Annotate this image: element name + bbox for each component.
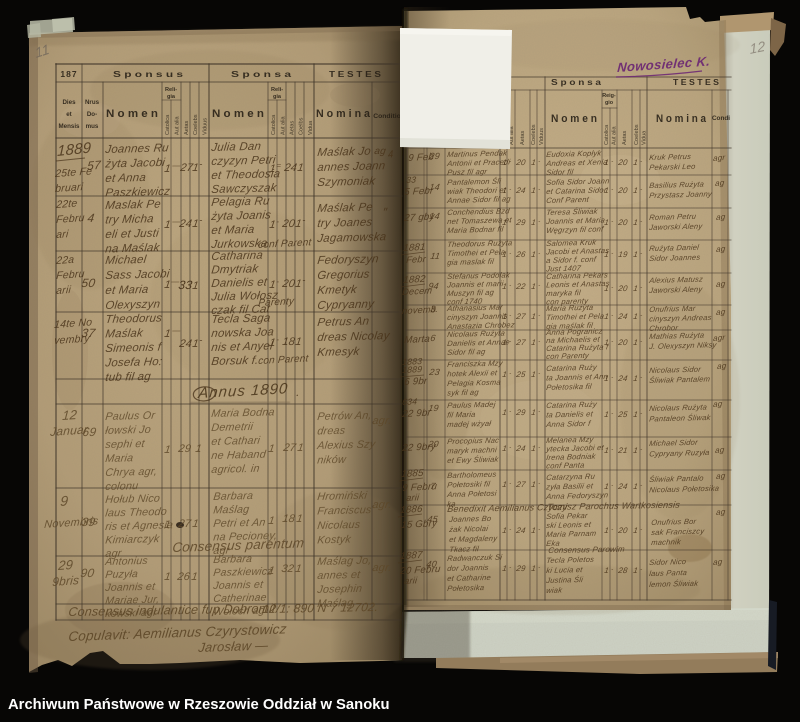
svg-text:fil Maria: fil Maria [447, 410, 476, 420]
svg-text:ag: ag [716, 212, 726, 222]
svg-text:ag: ag [713, 399, 723, 409]
svg-text:agr: agr [713, 333, 726, 343]
svg-text:20: 20 [427, 439, 440, 449]
svg-text:gia: gia [167, 94, 176, 100]
svg-text:Puzyła: Puzyła [105, 568, 139, 581]
svg-text:12: 12 [749, 38, 766, 57]
svg-text:mus: mus [86, 123, 99, 130]
svg-text:sak Franciszcy: sak Franciszcy [651, 527, 706, 537]
svg-text:Jaworski Aleny: Jaworski Aleny [648, 222, 704, 232]
svg-text:ag: ag [713, 557, 723, 567]
svg-text:Pelagia Kosma: Pelagia Kosma [447, 378, 502, 388]
svg-text:nis et Anyel: nis et Anyel [211, 340, 274, 354]
svg-text:Theodorus: Theodorus [105, 313, 163, 326]
svg-text:Mensis: Mensis [59, 123, 81, 130]
svg-text:gia: gia [273, 94, 282, 100]
svg-text:eli et Justi: eli et Justi [105, 228, 160, 241]
svg-text:29: 29 [177, 443, 192, 455]
svg-text:Catharina: Catharina [211, 250, 264, 263]
svg-text:Nicolaus Połetosika: Nicolaus Połetosika [649, 484, 720, 495]
svg-text:Śliwiak Pantalem: Śliwiak Pantalem [649, 374, 711, 385]
svg-text:Aut alia: Aut alia [612, 125, 618, 145]
svg-text:Kostyk: Kostyk [317, 534, 352, 547]
svg-text:annes et: annes et [317, 569, 362, 582]
svg-text:Barbara: Barbara [213, 553, 253, 566]
svg-text:9bris: 9bris [52, 573, 80, 589]
svg-text:Aetas: Aetas [520, 130, 526, 145]
svg-text:Pelagia Ru: Pelagia Ru [211, 195, 271, 209]
svg-text:22: 22 [515, 282, 527, 291]
svg-text:arii: arii [406, 492, 421, 503]
svg-text:20: 20 [617, 338, 629, 347]
svg-text:33: 33 [406, 174, 417, 185]
svg-text:3.: 3. [430, 304, 439, 314]
svg-text:annes Joann: annes Joann [317, 160, 386, 174]
svg-text:Mathias Rużyta: Mathias Rużyta [649, 331, 705, 341]
svg-text:29: 29 [515, 408, 527, 417]
svg-text:Antonius: Antonius [104, 555, 149, 568]
svg-text:żyta Jacobi: żyta Jacobi [104, 157, 166, 171]
svg-text:21: 21 [617, 446, 629, 455]
svg-text:agr: agr [713, 153, 726, 163]
svg-text:machnik: machnik [651, 537, 683, 547]
svg-text:Reli-: Reli- [165, 87, 177, 93]
svg-text:con Parenty: con Parenty [546, 351, 591, 361]
svg-text:Vidua: Vidua [308, 120, 314, 135]
svg-text:łowski Jo: łowski Jo [105, 424, 152, 437]
svg-text:Maślak Pe: Maślak Pe [317, 202, 374, 215]
svg-text:ag: ag [374, 146, 387, 157]
svg-text:Śliwiak Pantalo: Śliwiak Pantalo [649, 474, 704, 484]
svg-text:Maślag Jo,: Maślag Jo, [317, 555, 373, 568]
svg-text:Archiwum Państwowe w Rzeszowie: Archiwum Państwowe w Rzeszowie Oddział w… [8, 697, 390, 713]
svg-text:Fedoryszyn: Fedoryszyn [317, 253, 380, 267]
svg-text:20: 20 [617, 158, 629, 167]
svg-text:Parenty: Parenty [258, 296, 295, 309]
svg-text:Nicolaus Rużyta: Nicolaus Rużyta [649, 402, 708, 412]
svg-text:ag: ag [715, 178, 725, 188]
svg-text:Justina Śli: Justina Śli [545, 575, 584, 585]
svg-text:arii: arii [56, 284, 72, 297]
svg-text:Do-: Do- [87, 111, 97, 118]
svg-text:12/1: 890 N 7 12702.: 12/1: 890 N 7 12702. [262, 600, 380, 616]
svg-text:9: 9 [60, 492, 69, 509]
svg-text:Hołub Nico: Hołub Nico [105, 493, 161, 506]
svg-text:Anna Sidor f: Anna Sidor f [545, 419, 592, 429]
svg-text:24: 24 [617, 312, 629, 321]
svg-text:24: 24 [283, 162, 298, 174]
svg-text:634: 634 [402, 396, 418, 407]
svg-text:et Maria: et Maria [211, 224, 256, 237]
svg-text:Catolica: Catolica [165, 114, 171, 135]
svg-text:Maria Parnam: Maria Parnam [546, 529, 597, 539]
svg-text:Coelebs: Coelebs [634, 124, 640, 145]
svg-text:T E S T E S: T E S T E S [673, 77, 719, 87]
svg-text:20: 20 [515, 158, 527, 167]
svg-text:Onufrius Bor: Onufrius Bor [651, 517, 697, 527]
svg-text:32: 32 [281, 563, 295, 575]
svg-text:Sidor fil: Sidor fil [546, 167, 574, 177]
svg-text:Josephin: Josephin [316, 583, 363, 596]
svg-text:Pantaleon Śliwak: Pantaleon Śliwak [649, 413, 712, 424]
svg-text:Anna Połetosi: Anna Połetosi [446, 489, 498, 499]
svg-text:Demetrii: Demetrii [211, 421, 255, 434]
svg-text:agr.: agr. [372, 499, 393, 511]
svg-text:N o m e n: N o m e n [106, 108, 158, 120]
svg-text:ari: ari [56, 228, 70, 241]
svg-text:Roman Petru: Roman Petru [649, 212, 697, 222]
svg-text:Jaworski Aleny: Jaworski Aleny [648, 285, 704, 295]
svg-text:ta Joannis et Ann: ta Joannis et Ann [546, 372, 609, 383]
svg-text:Reli-: Reli- [271, 87, 283, 93]
svg-text:26: 26 [176, 571, 192, 583]
svg-text:Petrus An: Petrus An [317, 316, 370, 329]
svg-text:Franciscus: Franciscus [317, 504, 373, 517]
svg-text:ag: ag [716, 279, 726, 289]
svg-text:laus Panta: laus Panta [649, 568, 688, 578]
svg-text:Połetosika: Połetosika [447, 583, 485, 593]
svg-text:Conditio: Conditio [373, 113, 401, 120]
svg-text:Aut alia: Aut alia [175, 115, 181, 135]
svg-text:Aetas: Aetas [622, 130, 628, 145]
svg-text:try Joanes: try Joanes [317, 217, 373, 230]
svg-text:40: 40 [426, 559, 438, 569]
svg-text:27: 27 [282, 442, 298, 454]
svg-text:Aut alia: Aut alia [281, 115, 287, 135]
svg-text:19: 19 [428, 403, 440, 413]
svg-text:Kmetyk: Kmetyk [317, 284, 359, 297]
svg-text:24: 24 [617, 374, 629, 383]
svg-text:Przystasz Joanny: Przystasz Joanny [649, 189, 714, 200]
svg-text:N o m i n a: N o m i n a [316, 108, 371, 120]
svg-text:Viduus: Viduus [539, 128, 545, 145]
svg-text:Paszkiewicz: Paszkiewicz [213, 565, 274, 579]
svg-text:29: 29 [515, 218, 527, 227]
svg-text:et Anna: et Anna [105, 172, 147, 185]
svg-text:Aetas: Aetas [184, 120, 190, 135]
svg-text:Olexyszyn: Olexyszyn [105, 299, 161, 312]
svg-text:24: 24 [515, 444, 527, 453]
svg-text:ag: ag [716, 244, 726, 254]
svg-text:ag: ag [716, 307, 726, 317]
svg-text:69: 69 [82, 425, 98, 439]
svg-text:Julia Dan: Julia Dan [210, 141, 262, 154]
svg-text:et Maria: et Maria [105, 284, 150, 297]
svg-text:Tecla Poletos: Tecla Poletos [546, 555, 595, 565]
svg-text:29: 29 [57, 557, 74, 573]
svg-text:Maria Bodna: Maria Bodna [211, 406, 276, 420]
svg-text:Jagamowska: Jagamowska [316, 231, 388, 245]
svg-text:syk fil ag: syk fil ag [447, 388, 480, 398]
svg-text:27: 27 [515, 480, 527, 489]
svg-text:Michael: Michael [105, 254, 148, 267]
svg-text:57: 57 [87, 158, 103, 173]
svg-text:Petri et An: Petri et An [213, 517, 267, 530]
svg-text:Kmesyk: Kmesyk [317, 346, 361, 359]
svg-text:Joannis et: Joannis et [104, 581, 157, 594]
svg-text:et: et [66, 111, 72, 118]
svg-text:ta Danielis et: ta Danielis et [546, 409, 594, 419]
svg-text:et Ewy Śliwiak: et Ewy Śliwiak [447, 455, 500, 465]
svg-text:4: 4 [388, 149, 394, 161]
svg-text:Rużyta Daniel: Rużyta Daniel [649, 243, 700, 253]
svg-text:Sass Jacobi: Sass Jacobi [105, 268, 171, 282]
svg-text:Maślak Jo: Maślak Jo [317, 146, 372, 159]
svg-text:S p o n s u s: S p o n s u s [113, 70, 184, 79]
svg-text:S p o n s a: S p o n s a [231, 70, 292, 79]
svg-text:Hromiński: Hromiński [317, 490, 368, 503]
svg-text:Sidor fil ag: Sidor fil ag [447, 347, 487, 357]
svg-text:Simeonis f: Simeonis f [105, 342, 164, 355]
svg-text:Połetosiki fil: Połetosiki fil [447, 479, 491, 489]
svg-text:Sidor Nico: Sidor Nico [649, 557, 687, 567]
svg-text:Cypryany Ruzyła: Cypryany Ruzyła [649, 448, 710, 459]
svg-text:Vidua: Vidua [642, 130, 648, 145]
svg-text:laus Theodo: laus Theodo [105, 506, 168, 520]
svg-text:Annae Sidor fil ag: Annae Sidor fil ag [446, 194, 512, 205]
svg-text:Joannes Ru: Joannes Ru [104, 142, 170, 156]
svg-text:Consensus Parowim: Consensus Parowim [548, 545, 626, 555]
svg-text:czyzyn Petri: czyzyn Petri [211, 154, 277, 168]
svg-text:25: 25 [515, 370, 527, 379]
svg-text:conf Panta: conf Panta [546, 461, 585, 471]
svg-text:Andreas et Xenia: Andreas et Xenia [545, 157, 608, 168]
svg-text:ag: ag [715, 445, 725, 455]
svg-text:dor Joannis: dor Joannis [447, 563, 489, 573]
svg-text:Coelebs: Coelebs [531, 124, 537, 145]
svg-text:Josefa Ho:: Josefa Ho: [104, 356, 163, 369]
svg-text:Szymoniak: Szymoniak [317, 175, 377, 189]
svg-text:24: 24 [617, 482, 629, 491]
svg-text:S p o n s a: S p o n s a [551, 78, 602, 87]
svg-text:20: 20 [617, 284, 629, 293]
svg-text:Anna Fedoryszyn: Anna Fedoryszyn [545, 490, 609, 501]
svg-text:Kimiarczyk: Kimiarczyk [105, 533, 161, 546]
svg-text:24: 24 [515, 526, 527, 535]
svg-text:madej wżyał: madej wżyał [447, 419, 492, 429]
svg-text:Paszkiewicz: Paszkiewicz [105, 186, 171, 200]
svg-text:Reig-: Reig- [602, 93, 616, 99]
svg-text:tub fil ag: tub fil ag [105, 371, 152, 384]
svg-text:Onufrius Mar: Onufrius Mar [649, 304, 697, 314]
svg-text:ag: ag [716, 471, 726, 481]
svg-text:18: 18 [282, 513, 297, 525]
svg-text:14: 14 [429, 182, 441, 192]
svg-text:Maslak Pe: Maslak Pe [105, 199, 162, 212]
svg-text:żak Nicolai: żak Nicolai [448, 524, 489, 534]
svg-text:27: 27 [177, 518, 193, 530]
svg-text:N o m i n a: N o m i n a [656, 113, 707, 125]
svg-text:20: 20 [617, 186, 629, 195]
svg-text:Nicolaus Sidor: Nicolaus Sidor [649, 365, 702, 375]
svg-text:dreas: dreas [317, 425, 347, 438]
svg-text:25: 25 [617, 410, 629, 419]
svg-text:Joannis et: Joannis et [212, 579, 265, 592]
svg-text:gia maslak fil: gia maslak fil [447, 257, 495, 267]
svg-text:Michael Sidor: Michael Sidor [649, 438, 699, 448]
svg-text:Barbara: Barbara [213, 490, 254, 503]
svg-text:Maria Bodnar fil: Maria Bodnar fil [447, 225, 504, 235]
svg-text:27: 27 [515, 312, 527, 321]
svg-text:et Cathari: et Cathari [211, 435, 262, 448]
svg-text:Sawczyszak: Sawczyszak [211, 182, 279, 196]
svg-text:Conf Parent: Conf Parent [546, 195, 590, 205]
svg-text:Gregorius: Gregorius [317, 269, 371, 282]
svg-text:et Catharine: et Catharine [447, 573, 492, 583]
svg-text:12: 12 [62, 407, 78, 423]
svg-text:Węgrzyn fil conf: Węgrzyn fil conf [546, 224, 605, 235]
svg-text:Coelebs: Coelebs [193, 114, 199, 135]
svg-text:ników: ników [317, 454, 348, 467]
svg-text:94: 94 [428, 281, 440, 291]
svg-text:Sidor Joannes: Sidor Joannes [649, 253, 701, 263]
svg-text:Nicolaus: Nicolaus [317, 519, 362, 532]
svg-text:Coelbs: Coelbs [299, 117, 305, 135]
svg-text:Maślak: Maślak [105, 328, 145, 341]
svg-text:Catolica: Catolica [604, 124, 610, 145]
svg-text:11: 11 [430, 251, 441, 261]
svg-text:Paulus Or: Paulus Or [105, 410, 156, 423]
svg-text:24: 24 [178, 338, 193, 350]
svg-text:ag: ag [717, 361, 727, 371]
svg-text:Danielis et: Danielis et [211, 277, 269, 290]
svg-text:try Micha: try Micha [105, 213, 155, 226]
svg-text:et Magdaleny: et Magdaleny [449, 534, 499, 544]
svg-text:J. Olexyszyn Niksy: J. Olexyszyn Niksy [648, 340, 718, 351]
svg-text:Condi: Condi [712, 115, 730, 122]
svg-text:Paulus Madej: Paulus Madej [447, 400, 496, 410]
svg-text:50: 50 [81, 276, 97, 290]
svg-text:14: 14 [429, 211, 441, 221]
svg-text:Marta: Marta [404, 334, 431, 346]
svg-text:29: 29 [515, 564, 527, 573]
svg-text:ne Haband: ne Haband [211, 449, 268, 462]
svg-text:23: 23 [428, 367, 441, 377]
svg-text:Dmytriak: Dmytriak [211, 263, 260, 276]
svg-text:19: 19 [618, 250, 629, 259]
svg-text:cinyszyn Andreas: cinyszyn Andreas [649, 313, 712, 324]
svg-text:187: 187 [60, 69, 77, 79]
svg-text:Cypryanny: Cypryanny [317, 299, 376, 312]
svg-text:agr.: agr. [372, 562, 393, 574]
svg-text:nowska Joa: nowska Joa [211, 326, 275, 340]
svg-text:24: 24 [515, 186, 527, 195]
svg-text:Joannes Bo: Joannes Bo [448, 514, 492, 524]
svg-text:Basilius Rużyta: Basilius Rużyta [649, 180, 705, 190]
svg-text:Catolica: Catolica [271, 114, 277, 135]
svg-text:Jarosław —: Jarosław — [197, 638, 270, 655]
svg-text:wiak: wiak [546, 586, 564, 595]
svg-text:39: 39 [81, 515, 97, 529]
svg-text:agricol. in: agricol. in [211, 463, 261, 476]
svg-text:20: 20 [617, 218, 629, 227]
svg-text:Chrya agr,: Chrya agr, [105, 466, 158, 479]
svg-text:Alexius Matusz: Alexius Matusz [648, 275, 704, 285]
svg-text:6 9br: 6 9br [404, 376, 429, 388]
svg-text:22 9br: 22 9br [401, 407, 432, 420]
svg-text:N o m e n: N o m e n [212, 108, 264, 120]
svg-text:Kruk Petrus: Kruk Petrus [649, 152, 692, 162]
svg-text:arii: arii [404, 575, 419, 586]
svg-text:27: 27 [515, 338, 527, 347]
svg-text:Aetas: Aetas [290, 120, 296, 135]
svg-text:colonu: colonu [105, 480, 139, 493]
svg-text:sephi et: sephi et [105, 438, 147, 451]
svg-text:gio: gio [605, 100, 614, 106]
svg-text:Febru: Febru [56, 212, 85, 226]
svg-text:29: 29 [428, 151, 441, 161]
svg-text:Alexius Szy: Alexius Szy [316, 438, 377, 452]
svg-text:Maślag: Maślag [213, 504, 250, 517]
svg-text:20: 20 [617, 526, 629, 535]
svg-text:28: 28 [617, 566, 629, 575]
svg-text:żyta Joanis: żyta Joanis [210, 209, 272, 223]
svg-text:22a: 22a [55, 254, 75, 267]
svg-text:ag: ag [716, 507, 726, 517]
svg-text:Połetosika fil: Połetosika fil [546, 382, 593, 392]
svg-text:Borsuk f.: Borsuk f. [211, 355, 259, 368]
svg-text:T E S T E S: T E S T E S [329, 69, 381, 79]
svg-text:lemon Śliwiak: lemon Śliwiak [649, 579, 700, 589]
svg-text:Maria: Maria [105, 452, 134, 465]
svg-text:Petrów An,: Petrów An, [317, 410, 373, 423]
svg-text:Dies: Dies [62, 99, 76, 106]
svg-text:1889: 1889 [402, 364, 423, 375]
svg-text:Tecla Saga: Tecla Saga [211, 312, 272, 326]
svg-text:Pekarski Leo: Pekarski Leo [649, 162, 696, 172]
svg-text:24: 24 [178, 218, 193, 230]
svg-text:bruari: bruari [55, 181, 84, 195]
svg-text:Viduus: Viduus [203, 118, 209, 135]
svg-text:Radwanczuk Si: Radwanczuk Si [447, 553, 503, 563]
svg-text:Febru: Febru [56, 268, 85, 282]
svg-text:ki Lucia et: ki Lucia et [546, 565, 584, 575]
svg-text:Pusz fil agr: Pusz fil agr [447, 167, 488, 177]
svg-text:26: 26 [515, 250, 527, 259]
svg-text:N o m e n: N o m e n [551, 113, 597, 125]
svg-text:Nrus: Nrus [85, 99, 100, 106]
svg-text:22te: 22te [55, 197, 78, 211]
svg-text:dreas Nicolay: dreas Nicolay [317, 330, 392, 344]
svg-text:Febr: Febr [406, 254, 427, 265]
svg-text:90: 90 [80, 566, 96, 580]
svg-text:agr.: agr. [372, 415, 393, 427]
